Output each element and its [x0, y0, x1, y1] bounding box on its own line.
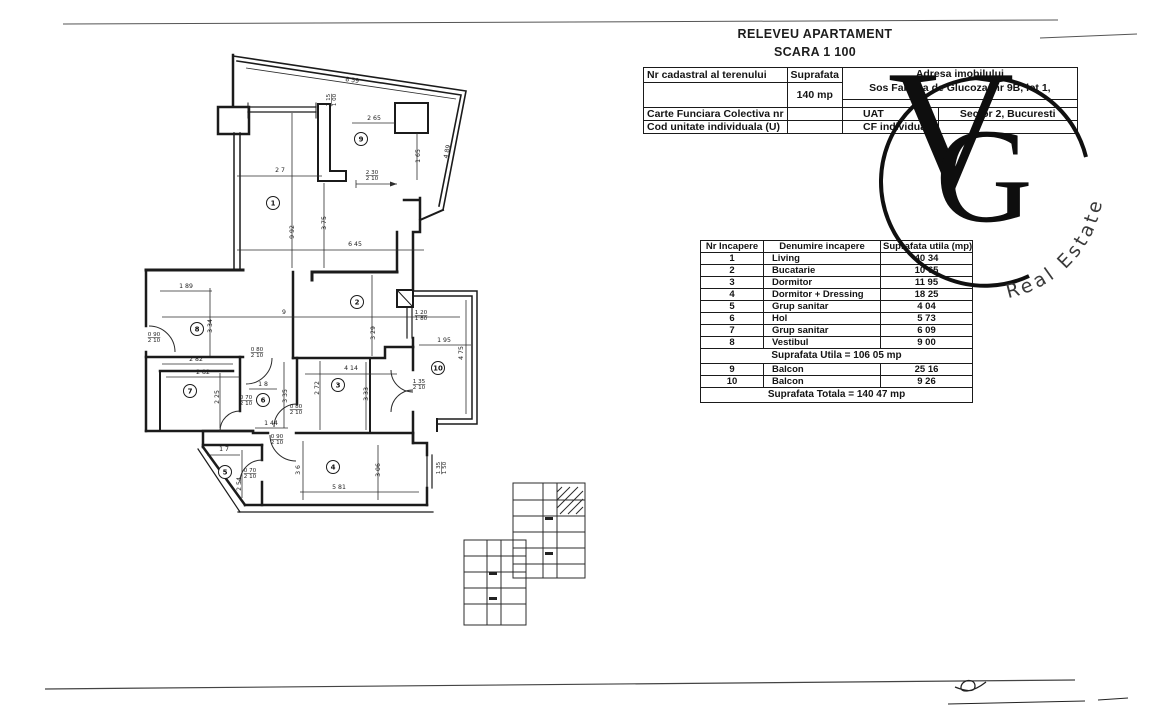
dimension-label: 0 702 10	[244, 468, 257, 480]
dimension-label: 3 29	[370, 326, 377, 340]
table-cell: Vestibul	[764, 337, 881, 349]
dimension-label: 1 65	[415, 149, 422, 163]
room-number: 3	[336, 382, 341, 390]
total-row: Suprafata Totala = 140 47 mp	[701, 388, 973, 403]
total-row-cell: Suprafata Totala = 140 47 mp	[701, 388, 973, 403]
dimension-label: 1 44	[264, 420, 278, 427]
dimension-labels: 8 592 151 002 651 654 892 72 302 109 923…	[148, 76, 465, 491]
dimension-label: 4 14	[344, 365, 358, 372]
table-cell: 5 73	[881, 313, 973, 325]
address-header: Adresa imobilului	[843, 68, 1077, 82]
dimension-label: 1 95	[437, 337, 451, 344]
dimension-label: 1 8	[258, 381, 268, 388]
dimension-label: 1 7	[219, 446, 229, 453]
dimension-label: 3 34	[207, 319, 214, 333]
room-number: 10	[433, 365, 443, 373]
room-table: Nr Incapere Denumire incapere Suprafata …	[700, 240, 973, 403]
dimension-label: 4 75	[458, 346, 465, 360]
dimension-label: 3 6	[295, 465, 302, 475]
table-row: 5Grup sanitar4 04	[701, 301, 973, 313]
table-row: 4Dormitor + Dressing18 25	[701, 289, 973, 301]
table-cell: 10 65	[881, 265, 973, 277]
room-number: 1	[271, 200, 276, 208]
dimension-label: 9	[282, 309, 286, 316]
table-cell: 5	[701, 301, 764, 313]
room-number: 5	[223, 469, 228, 477]
table-cell: Balcon	[764, 364, 881, 376]
col-header-area: Suprafata utila (mp)	[881, 241, 973, 253]
table-cell: 40 34	[881, 253, 973, 265]
dimension-label: 0 802 10	[251, 347, 264, 359]
table-cell: 8	[701, 337, 764, 349]
subtotal-row-cell: Suprafata Utila = 106 05 mp	[701, 349, 973, 364]
document-sheet: 8 592 151 002 651 654 892 72 302 109 923…	[0, 0, 1149, 720]
table-cell: 6 09	[881, 325, 973, 337]
cf-label: CF individuala	[842, 121, 938, 134]
table-cell: Hol	[764, 313, 881, 325]
table-row: 6Hol5 73	[701, 313, 973, 325]
door-arc	[391, 370, 413, 392]
table-cell: 9 00	[881, 337, 973, 349]
walls	[146, 55, 477, 512]
dimension-label: 0 902 10	[148, 332, 161, 344]
window	[427, 455, 432, 488]
table-row: 9Balcon25 16	[701, 364, 973, 376]
table-cell: Dormitor	[764, 277, 881, 289]
cadastral-label: Nr cadastral al terenului	[644, 68, 788, 83]
uat-value: Sector 2, Bucuresti	[938, 108, 1077, 121]
title-block: RELEVEU APARTAMENT SCARA 1 100	[695, 27, 935, 59]
uat-label: UAT	[842, 108, 938, 121]
dimension-label: 3 33	[363, 387, 370, 401]
dimension-label: 2 302 10	[366, 170, 379, 182]
cadastral-table: Nr cadastral al terenului Suprafata Adre…	[643, 67, 1078, 134]
area-label: Suprafata	[787, 68, 842, 83]
dimension-label: 1 201 80	[415, 310, 428, 322]
dimension-label: 2 25	[214, 390, 221, 404]
room-number: 2	[355, 299, 360, 307]
table-row: 3Dormitor11 95	[701, 277, 973, 289]
table-cell: 1	[701, 253, 764, 265]
col-header-name: Denumire incapere	[764, 241, 881, 253]
address-value: Sos Fabrica de Glucoza, nr 9B, lot 1,	[843, 82, 1077, 100]
page-title: RELEVEU APARTAMENT	[695, 27, 935, 41]
subtotal-row: Suprafata Utila = 106 05 mp	[701, 349, 973, 364]
table-cell: 3	[701, 277, 764, 289]
dimension-label: 2 7	[275, 167, 285, 174]
land-book-label: Carte Funciara Colectiva nr	[644, 108, 788, 121]
dimension-label: 0 702 10	[240, 395, 253, 407]
area-value: 140 mp	[787, 83, 842, 108]
dimension-label: 0 802 10	[290, 404, 303, 416]
table-cell: Grup sanitar	[764, 325, 881, 337]
room-number: 8	[195, 326, 200, 334]
table-cell: Dormitor + Dressing	[764, 289, 881, 301]
window	[248, 107, 316, 112]
pillar	[395, 103, 428, 133]
table-cell: 4 04	[881, 301, 973, 313]
unit-code-value	[787, 121, 842, 134]
table-cell: 9	[701, 364, 764, 376]
door-arcs	[149, 326, 413, 482]
door-arc	[220, 411, 240, 431]
room-number: 7	[188, 388, 193, 396]
table-cell: 2	[701, 265, 764, 277]
dimension-label: 4 89	[443, 144, 453, 159]
cf-value	[938, 121, 1077, 134]
table-row: 7Grup sanitar6 09	[701, 325, 973, 337]
room-number: 6	[261, 397, 266, 405]
table-row: 10Balcon9 26	[701, 376, 973, 388]
address-cell: Adresa imobilului Sos Fabrica de Glucoza…	[842, 68, 1077, 108]
dimension-label: 3 75	[321, 216, 328, 230]
dimension-label: 2 82	[196, 369, 210, 376]
cadastral-value	[644, 83, 788, 108]
table-cell: 11 95	[881, 277, 973, 289]
land-book-value	[787, 108, 842, 121]
room-number: 4	[331, 464, 336, 472]
dimension-label: 6 45	[348, 241, 362, 248]
table-row: 8Vestibul9 00	[701, 337, 973, 349]
table-cell: 25 16	[881, 364, 973, 376]
table-cell: 18 25	[881, 289, 973, 301]
dimension-label: 3 06	[375, 463, 382, 477]
key-plan	[464, 483, 585, 625]
room-table-header-row: Nr Incapere Denumire incapere Suprafata …	[701, 241, 973, 253]
signature	[948, 680, 1128, 704]
dimension-label: 2 82	[189, 356, 203, 363]
dimension-label: 2 72	[314, 381, 321, 395]
dimension-label: 1 89	[179, 283, 193, 290]
table-cell: Living	[764, 253, 881, 265]
dimension-label: 1 351 50	[436, 461, 448, 474]
dimension-label: 8 59	[345, 76, 360, 85]
dimension-label: 5 81	[332, 484, 346, 491]
dimension-label: 2 151 00	[326, 93, 338, 106]
window	[407, 307, 412, 338]
table-cell: Grup sanitar	[764, 301, 881, 313]
table-cell: 4	[701, 289, 764, 301]
arrow-head	[390, 182, 397, 187]
table-row: 1Living40 34	[701, 253, 973, 265]
table-cell: Bucatarie	[764, 265, 881, 277]
dimension-label: 2 54	[236, 477, 243, 491]
table-cell: 7	[701, 325, 764, 337]
table-cell: 9 26	[881, 376, 973, 388]
table-cell: 10	[701, 376, 764, 388]
door-arc	[391, 390, 413, 412]
dimension-label: 3 35	[282, 389, 289, 403]
dimension-label: 0 902 10	[271, 434, 284, 446]
table-cell: 6	[701, 313, 764, 325]
dimension-label: 1 352 10	[413, 379, 426, 391]
table-cell: Balcon	[764, 376, 881, 388]
dimension-label: 9 92	[289, 225, 296, 239]
table-row: 2Bucatarie10 65	[701, 265, 973, 277]
unit-code-label: Cod unitate individuala (U)	[644, 121, 788, 134]
dimension-label: 2 65	[367, 115, 381, 122]
pillar	[218, 107, 249, 134]
room-number: 9	[359, 136, 364, 144]
page-scale: SCARA 1 100	[695, 45, 935, 59]
col-header-nr: Nr Incapere	[701, 241, 764, 253]
